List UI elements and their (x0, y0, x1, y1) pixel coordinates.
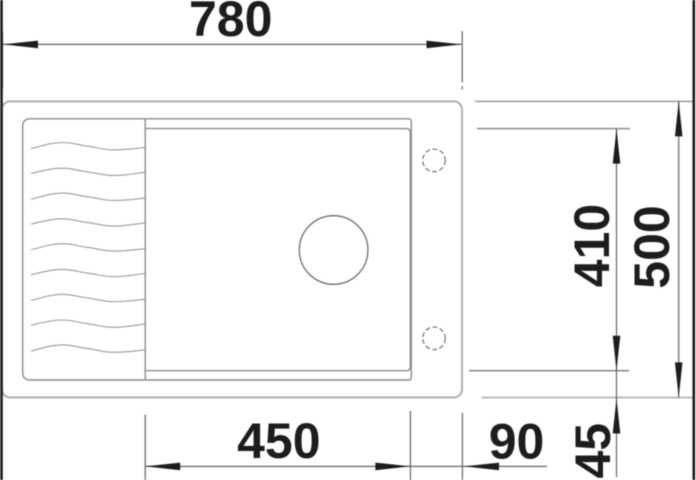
svg-text:90: 90 (489, 413, 545, 469)
svg-text:500: 500 (624, 205, 680, 288)
svg-text:780: 780 (189, 0, 272, 47)
svg-text:450: 450 (237, 413, 320, 469)
svg-text:410: 410 (564, 204, 620, 287)
svg-text:45: 45 (565, 423, 621, 479)
